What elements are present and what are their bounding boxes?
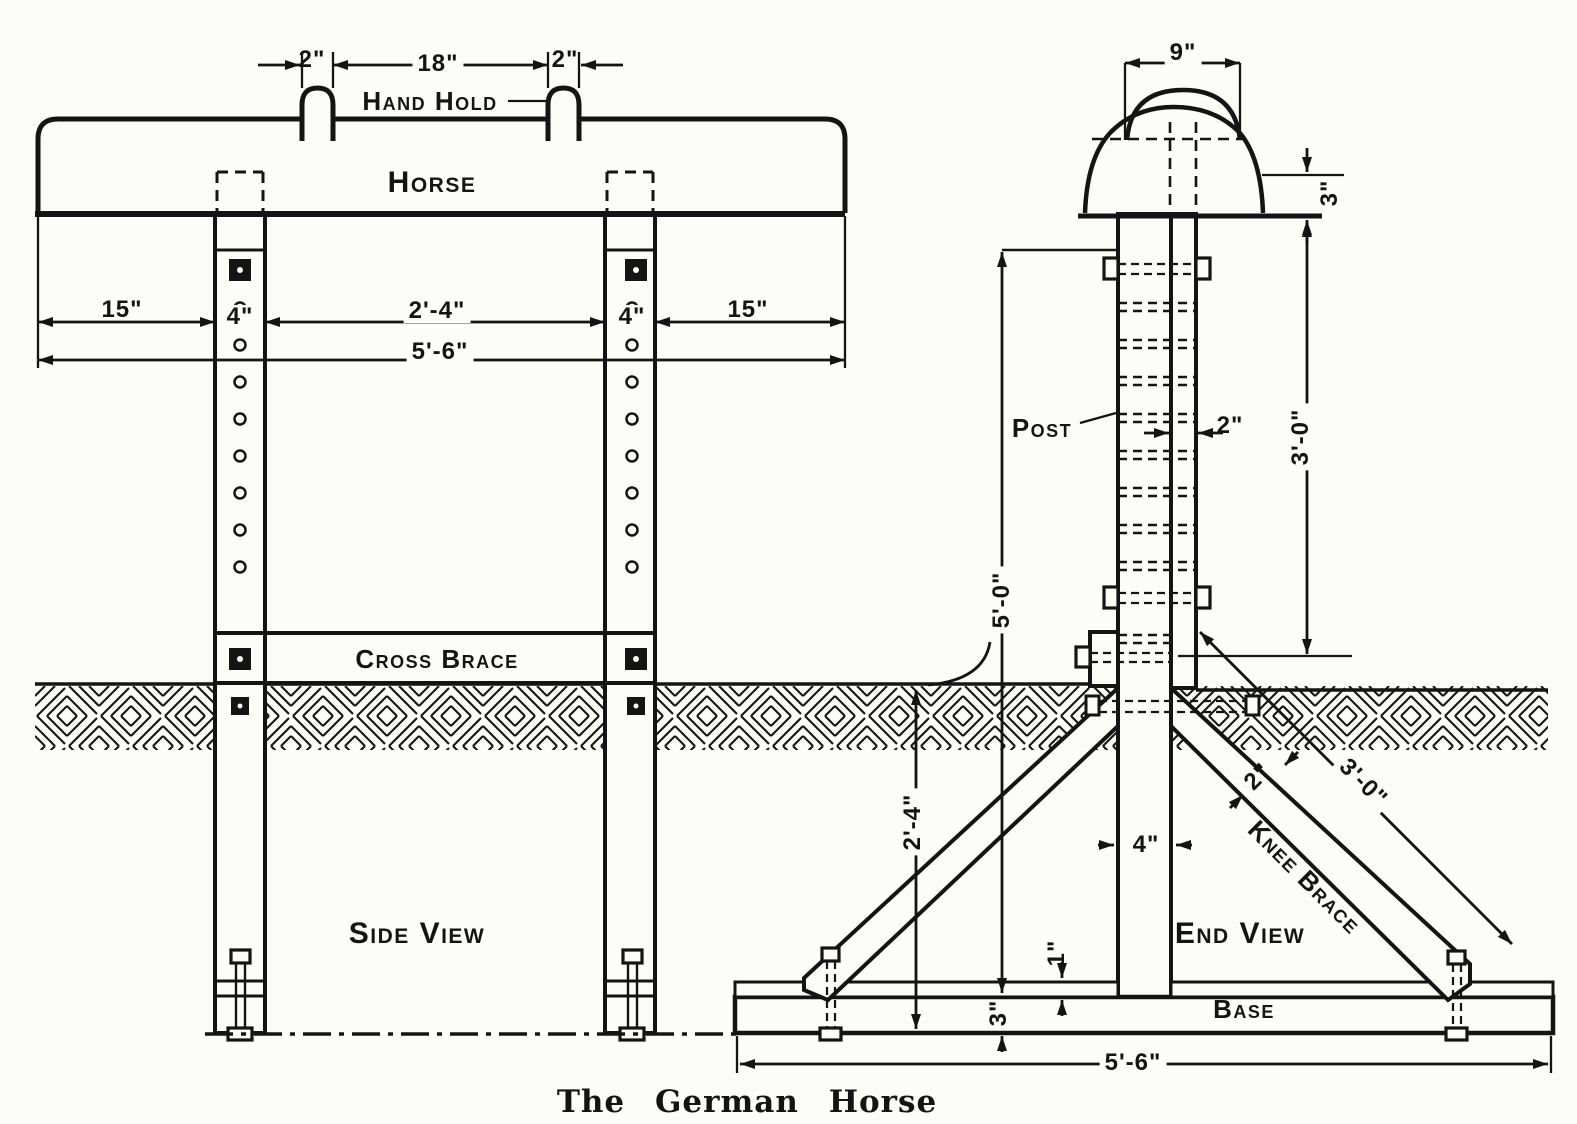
hand-hold-left [302, 88, 333, 141]
base-label: Base [1213, 996, 1275, 1022]
hand-hold-end [1127, 90, 1240, 140]
side-post-right [605, 215, 655, 1033]
side-post-left [215, 215, 265, 1033]
drawing-linework [0, 0, 1577, 1124]
post-label: Post [1012, 415, 1072, 441]
dim-base-thickness: 3" [987, 1000, 1011, 1027]
dim-post-width-left: 4" [222, 305, 259, 329]
horse-label: Horse [388, 168, 477, 198]
dim-post-length: 5'-0" [990, 567, 1014, 634]
cleat-left [735, 982, 1118, 997]
hand-hold-right [548, 88, 579, 141]
dim-overhang-right: 15" [727, 298, 768, 322]
dim-hand-hold-gap: 18" [412, 52, 463, 76]
side-view-title: Side View [349, 919, 486, 949]
dim-post-width-right: 4" [614, 305, 651, 329]
dim-buried-depth: 2'-4" [901, 789, 925, 856]
dim-base-length: 5'-6" [1100, 1051, 1167, 1075]
dim-hand-hold-width-right: 2" [552, 48, 579, 72]
dim-top-width: 9" [1165, 41, 1202, 65]
side-view-drawing [35, 88, 845, 1040]
dim-overhang-left: 15" [101, 298, 142, 322]
dim-hand-hold-width-left: 2" [299, 48, 326, 72]
base-board [735, 997, 1553, 1033]
dim-height-above-ground: 3'-0" [1289, 404, 1313, 471]
hand-hold-label: Hand Hold [362, 88, 497, 114]
dim-post-gap: 2'-4" [404, 299, 471, 323]
dim-post-width-end: 4" [1133, 833, 1160, 857]
dim-rail-width: 2" [1217, 414, 1244, 438]
dim-body-depth: 3" [1318, 180, 1342, 207]
end-view-title: End View [1175, 919, 1305, 949]
german-horse-drawing: Horse Hand Hold Cross Brace Side View En… [0, 0, 1577, 1124]
dim-horse-length: 5'-6" [407, 340, 474, 364]
end-post [1118, 214, 1171, 997]
dim-cleat-thickness: 1" [1045, 940, 1069, 967]
cross-brace-label: Cross Brace [355, 646, 518, 672]
figure-caption: The German Horse [557, 1084, 937, 1120]
base-bolts [228, 950, 644, 1040]
end-view-drawing [735, 90, 1553, 1040]
